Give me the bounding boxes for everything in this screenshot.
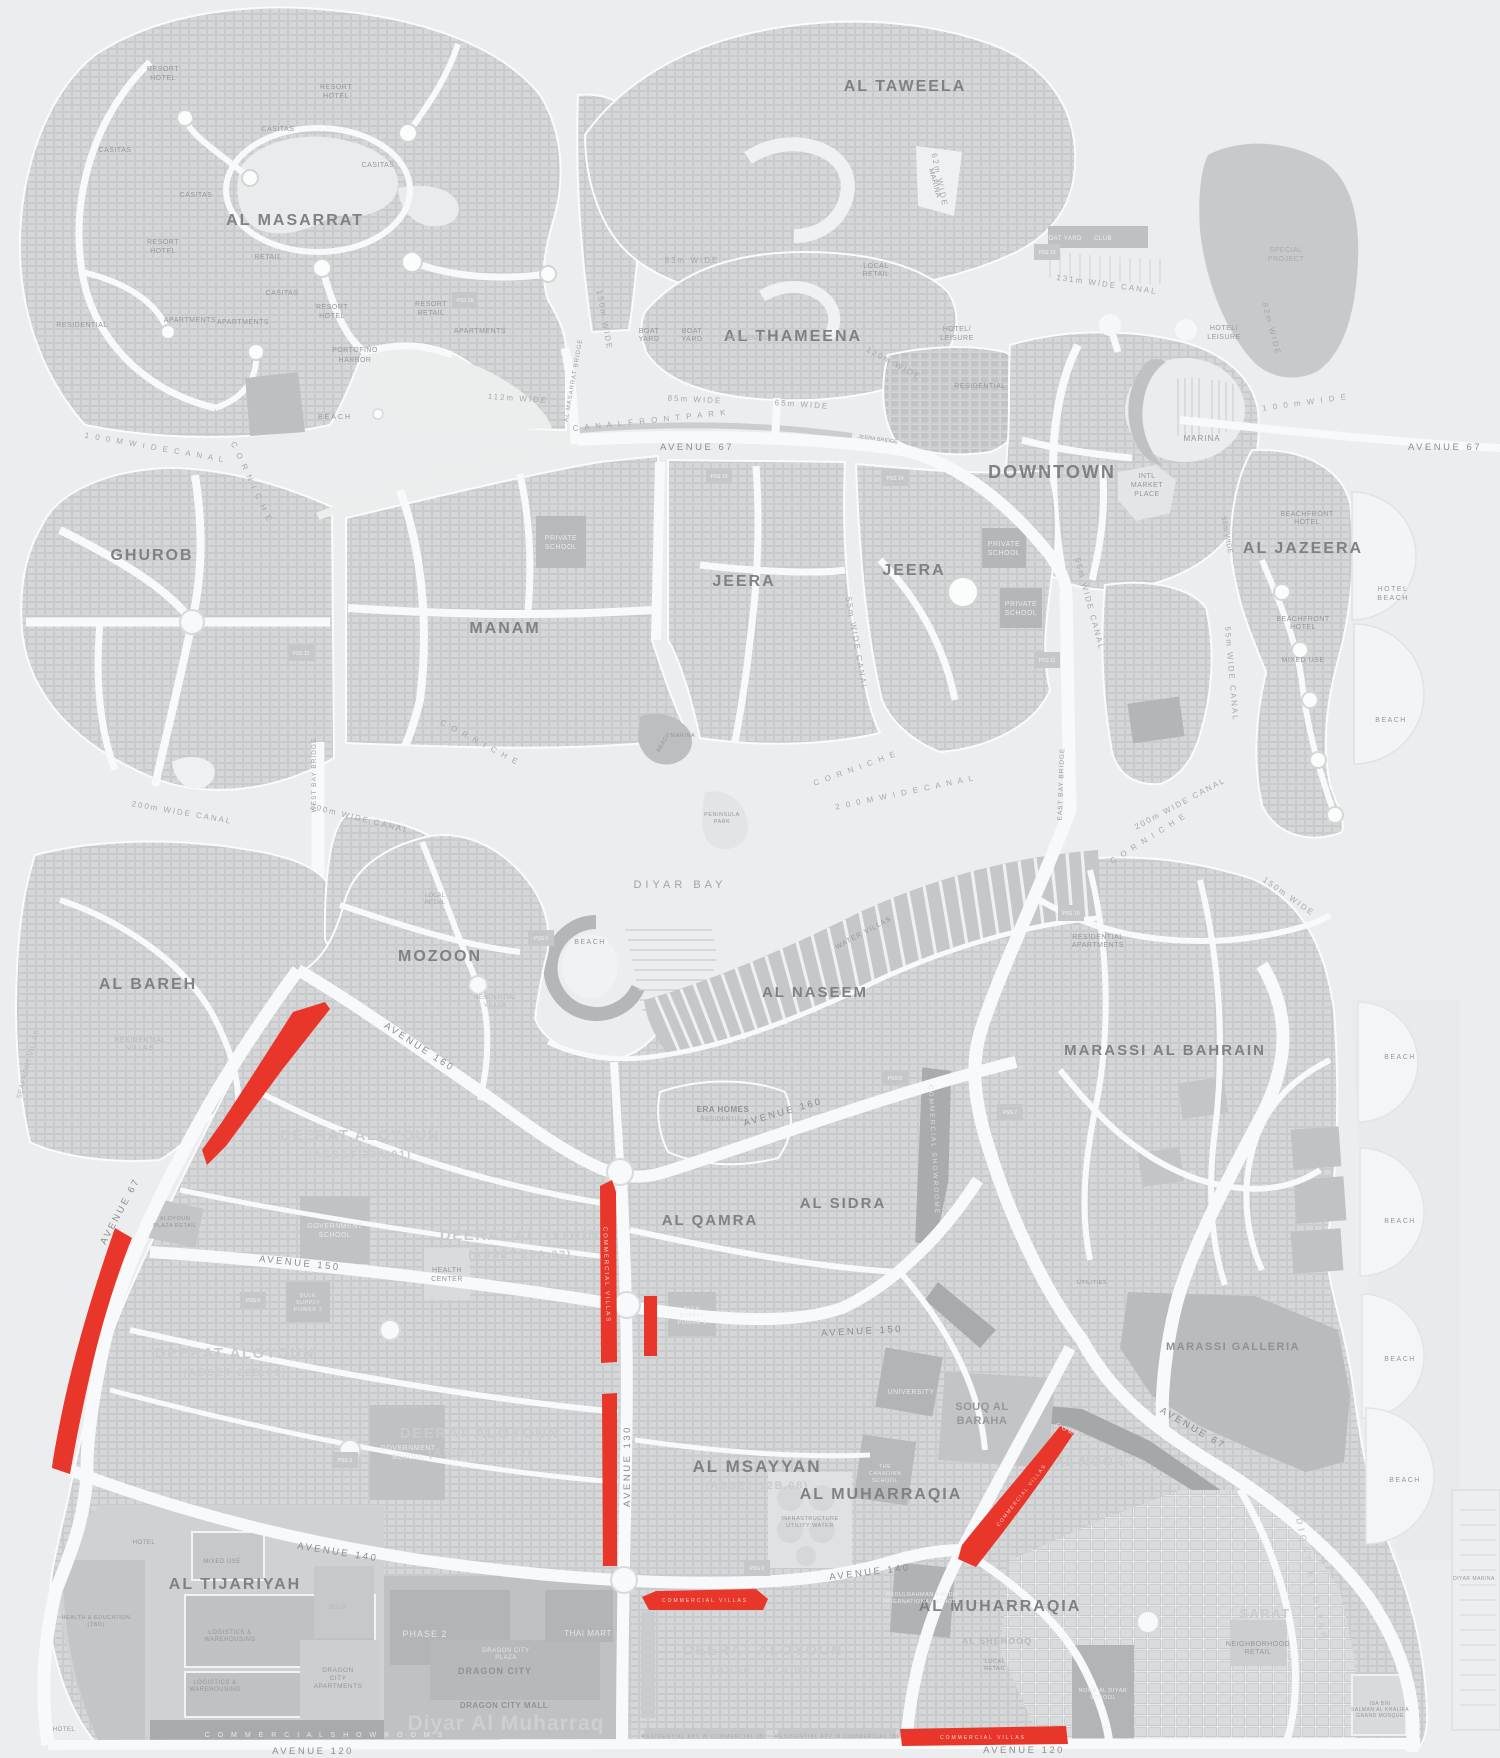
svg-text:(ASSET 22B.01): (ASSET 22B.01): [183, 1367, 287, 1379]
svg-text:NEIGHBORHOOD: NEIGHBORHOOD: [1226, 1641, 1290, 1648]
svg-text:SOUQ AL: SOUQ AL: [955, 1401, 1008, 1413]
svg-text:GOVERNMENT: GOVERNMENT: [380, 1445, 435, 1452]
svg-text:PSS 14: PSS 14: [887, 476, 904, 482]
svg-text:UTILITIES: UTILITIES: [1077, 1280, 1107, 1286]
svg-text:83m WIDE: 83m WIDE: [665, 256, 720, 265]
svg-text:HOTEL/: HOTEL/: [1210, 325, 1238, 332]
svg-text:MANAM: MANAM: [469, 620, 540, 637]
svg-text:CLUB: CLUB: [1094, 236, 1112, 242]
svg-text:APARTMENTS: APARTMENTS: [314, 1683, 363, 1690]
svg-text:APARTMENTS: APARTMENTS: [1072, 942, 1124, 949]
svg-text:PROJECT: PROJECT: [1268, 256, 1304, 263]
svg-text:GHUROB: GHUROB: [110, 547, 193, 564]
svg-text:THE: THE: [879, 1464, 892, 1470]
svg-text:AL SHEROOQ: AL SHEROOQ: [962, 1636, 1032, 1646]
svg-text:AL NASEEM: AL NASEEM: [762, 984, 868, 1001]
svg-text:AVENUE 120: AVENUE 120: [272, 1746, 354, 1757]
svg-text:LOCAL: LOCAL: [425, 893, 445, 899]
svg-text:GRAND MOSQUE: GRAND MOSQUE: [1356, 1713, 1404, 1719]
svg-text:AL TAWEELA: AL TAWEELA: [844, 78, 967, 95]
svg-text:AVENUE 130: AVENUE 130: [622, 1425, 633, 1507]
svg-text:PSS 3: PSS 3: [338, 1458, 352, 1464]
svg-text:(TBD): (TBD): [87, 1622, 104, 1628]
svg-text:POWER 2: POWER 2: [294, 1307, 323, 1313]
svg-text:SCHOOL: SCHOOL: [1005, 610, 1038, 617]
svg-text:PENINSULA: PENINSULA: [704, 812, 740, 818]
svg-text:(ASSET 22B.02): (ASSET 22B.02): [428, 1447, 532, 1459]
svg-text:BEACH: BEACH: [1377, 595, 1409, 602]
svg-text:AL MUHARRAQIA: AL MUHARRAQIA: [800, 1486, 963, 1503]
svg-text:PARK: PARK: [714, 819, 731, 825]
svg-text:NOOR AL DIYAR: NOOR AL DIYAR: [1079, 1688, 1128, 1694]
svg-text:PSS 11: PSS 11: [1039, 658, 1056, 664]
svg-text:RESIDENTIAL: RESIDENTIAL: [954, 383, 1005, 390]
svg-text:CASITAS: CASITAS: [262, 126, 295, 133]
svg-text:POWER 1: POWER 1: [678, 1320, 707, 1326]
svg-text:RESORT: RESORT: [147, 66, 179, 73]
svg-text:PSS 13: PSS 13: [711, 474, 728, 480]
svg-text:Diyar Al Muharraq: Diyar Al Muharraq: [407, 1712, 604, 1735]
svg-text:HOTEL: HOTEL: [1290, 624, 1316, 631]
svg-text:CASITAS: CASITAS: [99, 147, 132, 154]
svg-text:APARTMENTS: APARTMENTS: [164, 317, 216, 324]
svg-text:HOTEL: HOTEL: [1378, 586, 1409, 593]
svg-text:RESIDENTIAL: RESIDENTIAL: [474, 994, 517, 1001]
svg-text:AVENUE 67: AVENUE 67: [1408, 442, 1482, 453]
svg-text:BEACH: BEACH: [1384, 1356, 1416, 1363]
svg-text:RESIDENTIAL: RESIDENTIAL: [727, 335, 770, 342]
svg-text:WAREHOUSING: WAREHOUSING: [189, 1687, 240, 1693]
svg-text:RESIDENTIAL: RESIDENTIAL: [701, 1117, 746, 1123]
svg-text:DOWNTOWN: DOWNTOWN: [988, 462, 1116, 482]
svg-text:RESORT: RESORT: [415, 301, 447, 308]
svg-text:PSS 5: PSS 5: [888, 1076, 902, 1082]
svg-text:UNIVERSITY: UNIVERSITY: [887, 1389, 934, 1396]
svg-text:BOAT: BOAT: [639, 328, 660, 335]
svg-text:AL MASARRAT: AL MASARRAT: [226, 212, 364, 229]
svg-text:SCHOOL: SCHOOL: [392, 1454, 425, 1461]
svg-text:SCHOOL: SCHOOL: [872, 1478, 898, 1484]
svg-text:SCHOOL: SCHOOL: [319, 1232, 352, 1239]
svg-text:RESIDENTIAL: RESIDENTIAL: [1072, 934, 1123, 941]
svg-text:BEACH: BEACH: [1375, 717, 1407, 724]
svg-text:RESIDENTIAL APT W COMMERCIAL (: RESIDENTIAL APT W COMMERCIAL (B): [642, 1734, 767, 1740]
svg-text:HOTEL/: HOTEL/: [943, 326, 971, 333]
svg-text:GOVERNMENT: GOVERNMENT: [307, 1223, 362, 1230]
svg-text:WEST BAY BRIDGE: WEST BAY BRIDGE: [311, 738, 318, 813]
svg-text:MOZOON: MOZOON: [398, 948, 482, 965]
svg-text:BEACHFRONT: BEACHFRONT: [1280, 511, 1333, 518]
svg-text:(ASSET 23A.02): (ASSET 23A.02): [468, 1249, 572, 1261]
svg-text:AVENUE 67: AVENUE 67: [660, 442, 734, 453]
svg-text:RETAIL: RETAIL: [418, 310, 445, 317]
svg-text:RESORT: RESORT: [320, 84, 352, 91]
svg-text:SCHOOL: SCHOOL: [1090, 1695, 1116, 1701]
svg-text:RESIDENTIAL: RESIDENTIAL: [114, 1037, 165, 1044]
svg-text:SUPPLY: SUPPLY: [680, 1313, 704, 1319]
svg-text:HOTEL: HOTEL: [150, 248, 176, 255]
svg-text:RESIDENTIAL APT W COMMERCIAL (: RESIDENTIAL APT W COMMERCIAL (B): [775, 1734, 900, 1740]
svg-text:DEERAT ALOYOUN: DEERAT ALOYOUN: [280, 1127, 440, 1144]
svg-text:JEERA: JEERA: [712, 573, 775, 590]
svg-text:AL QAMRA: AL QAMRA: [662, 1212, 759, 1229]
svg-text:PSS 12: PSS 12: [293, 651, 310, 657]
svg-text:CASITAS: CASITAS: [180, 192, 213, 199]
svg-text:PSS 9: PSS 9: [534, 936, 548, 942]
svg-text:MARINA: MARINA: [1183, 434, 1220, 443]
svg-text:PLAZA RETAIL: PLAZA RETAIL: [153, 1223, 197, 1229]
svg-text:LOGISTICS &: LOGISTICS &: [208, 1630, 251, 1636]
svg-text:DRAGON: DRAGON: [322, 1667, 354, 1674]
svg-text:DEERAT ALOYOUN: DEERAT ALOYOUN: [683, 1642, 843, 1659]
svg-text:HOTEL: HOTEL: [150, 75, 176, 82]
svg-text:CASITAS: CASITAS: [266, 290, 299, 297]
svg-text:APARTMENTS: APARTMENTS: [217, 319, 269, 326]
svg-text:RESIDENTIAL: RESIDENTIAL: [56, 322, 107, 329]
svg-text:PSS 16: PSS 16: [457, 298, 474, 304]
svg-text:HOTEL: HOTEL: [319, 313, 345, 320]
svg-text:SUPPLY: SUPPLY: [296, 1300, 320, 1306]
svg-text:MARINA: MARINA: [671, 733, 695, 739]
svg-text:HOTEL: HOTEL: [133, 1540, 156, 1546]
svg-text:PHASE 2: PHASE 2: [402, 1629, 447, 1639]
svg-text:RETAIL: RETAIL: [863, 271, 890, 278]
svg-text:BEACHFRONT: BEACHFRONT: [1276, 616, 1329, 623]
svg-text:BOAT YARD: BOAT YARD: [1044, 236, 1082, 242]
svg-text:BEACH: BEACH: [1384, 1054, 1416, 1061]
svg-text:DRAGON CITY: DRAGON CITY: [458, 1666, 532, 1676]
svg-text:YARD: YARD: [682, 336, 703, 343]
svg-text:THAI MART: THAI MART: [564, 1629, 611, 1638]
svg-text:AL JAZEERA: AL JAZEERA: [1243, 540, 1363, 557]
svg-text:BEACH: BEACH: [574, 939, 606, 946]
svg-text:RESORT: RESORT: [147, 239, 179, 246]
svg-text:INTL: INTL: [1138, 473, 1155, 480]
svg-text:DEERAT ALOYOUN: DEERAT ALOYOUN: [400, 1425, 560, 1442]
svg-text:DEERAT ALOYOUN: DEERAT ALOYOUN: [155, 1345, 315, 1362]
svg-text:MIXED USE: MIXED USE: [1281, 657, 1324, 664]
svg-text:SCHOOL: SCHOOL: [545, 544, 578, 551]
svg-text:AL MSAYYAN: AL MSAYYAN: [693, 1457, 822, 1476]
svg-text:PLAZA: PLAZA: [495, 1655, 517, 1661]
svg-text:DIYAR MARINA: DIYAR MARINA: [1453, 1576, 1495, 1582]
svg-text:MARASSI AL BAHRAIN: MARASSI AL BAHRAIN: [1064, 1042, 1266, 1059]
svg-text:BULK: BULK: [684, 1306, 700, 1312]
svg-text:COMMERCIAL VILLAS: COMMERCIAL VILLAS: [662, 1598, 748, 1604]
svg-text:DRAGON CITY MALL: DRAGON CITY MALL: [460, 1701, 548, 1710]
svg-text:JEERA: JEERA: [882, 562, 945, 579]
svg-text:CENTER: CENTER: [431, 1276, 463, 1283]
svg-text:YARD: YARD: [639, 336, 660, 343]
svg-text:COMMERCIAL VILLAS: COMMERCIAL VILLAS: [940, 1735, 1026, 1741]
svg-text:BEACH: BEACH: [1384, 1218, 1416, 1225]
svg-text:SARAT: SARAT: [1239, 1606, 1290, 1621]
svg-text:DEERAT ALOYOUN: DEERAT ALOYOUN: [440, 1227, 600, 1244]
svg-text:BEACH: BEACH: [318, 414, 352, 421]
svg-text:MARKET: MARKET: [1131, 482, 1163, 489]
svg-text:AL BAREH: AL BAREH: [99, 976, 197, 993]
svg-text:(ASSET 12A.01): (ASSET 12A.01): [711, 1664, 815, 1676]
svg-text:HOTEL: HOTEL: [53, 1727, 76, 1733]
svg-text:BULK: BULK: [300, 1293, 316, 1299]
svg-text:PRIVATE: PRIVATE: [988, 541, 1020, 548]
svg-text:AVENUE 120: AVENUE 120: [983, 1745, 1065, 1756]
svg-text:BARAHA: BARAHA: [957, 1415, 1008, 1427]
svg-text:SCHOOL: SCHOOL: [988, 550, 1021, 557]
svg-text:LEISURE: LEISURE: [1207, 334, 1240, 341]
svg-text:HOTEL: HOTEL: [1294, 519, 1320, 526]
svg-text:CANADIAN: CANADIAN: [869, 1471, 901, 1477]
svg-text:LEISURE: LEISURE: [940, 335, 973, 342]
svg-text:SOUK: SOUK: [328, 1605, 347, 1611]
svg-text:MARASSI GALLERIA: MARASSI GALLERIA: [1166, 1341, 1300, 1353]
svg-text:SPECIAL: SPECIAL: [1269, 247, 1302, 254]
svg-text:PSS 2: PSS 2: [750, 1566, 764, 1572]
svg-text:ABDULRAHMAN KANDO: ABDULRAHMAN KANDO: [886, 1592, 958, 1598]
svg-text:AL SIDRA: AL SIDRA: [800, 1195, 887, 1212]
svg-text:DIYAR BAY: DIYAR BAY: [633, 879, 726, 891]
svg-text:VILLAS: VILLAS: [484, 1002, 507, 1009]
svg-text:PSS 7: PSS 7: [1003, 1110, 1017, 1116]
svg-text:RESORT: RESORT: [316, 304, 348, 311]
svg-text:RETAIL: RETAIL: [984, 1666, 1006, 1672]
svg-text:MIXED USE: MIXED USE: [203, 1559, 241, 1565]
svg-text:DRAGON CITY: DRAGON CITY: [482, 1648, 529, 1654]
svg-text:PRIVATE: PRIVATE: [1005, 601, 1037, 608]
svg-text:INTERNATIONAL SCHOOL: INTERNATIONAL SCHOOL: [883, 1599, 961, 1605]
svg-text:INFRASTRUCTURE: INFRASTRUCTURE: [781, 1516, 838, 1522]
svg-text:ERA HOMES: ERA HOMES: [697, 1105, 750, 1114]
svg-text:PLACE: PLACE: [1134, 491, 1159, 498]
svg-text:PRIVATE: PRIVATE: [545, 535, 577, 542]
svg-text:HARBOR: HARBOR: [339, 357, 372, 364]
svg-text:LOCAL: LOCAL: [863, 263, 888, 270]
svg-text:ALOYOUN: ALOYOUN: [160, 1216, 190, 1222]
svg-text:PSS 10: PSS 10: [1063, 911, 1080, 917]
svg-text:WAREHOUSING: WAREHOUSING: [204, 1637, 255, 1643]
svg-text:RETAIL: RETAIL: [425, 900, 446, 906]
svg-text:RETAIL: RETAIL: [1245, 1649, 1272, 1656]
svg-text:LOCAL: LOCAL: [985, 1659, 1006, 1665]
svg-text:(ASSET 12B.08): (ASSET 12B.08): [705, 1480, 809, 1492]
svg-text:AL TIJARIYAH: AL TIJARIYAH: [169, 1576, 301, 1593]
svg-text:PORTOFINO: PORTOFINO: [332, 347, 378, 354]
svg-text:BEACH: BEACH: [1389, 1477, 1421, 1484]
svg-text:BOAT: BOAT: [682, 328, 703, 335]
svg-text:RETAIL: RETAIL: [255, 254, 282, 261]
svg-text:VILLAS: VILLAS: [127, 1045, 154, 1052]
svg-text:HEALTH & EDUCATION: HEALTH & EDUCATION: [62, 1615, 131, 1621]
svg-text:(ASSET 23A.01): (ASSET 23A.01): [308, 1149, 412, 1161]
svg-text:APARTMENTS: APARTMENTS: [454, 328, 506, 335]
svg-text:CASITAS: CASITAS: [362, 162, 395, 169]
svg-text:UTILITY WATER: UTILITY WATER: [786, 1523, 834, 1529]
svg-text:LOGISTICS &: LOGISTICS &: [193, 1680, 236, 1686]
svg-text:HOTEL: HOTEL: [323, 93, 349, 100]
svg-text:CITY: CITY: [330, 1675, 347, 1682]
svg-text:PSS 8: PSS 8: [246, 1298, 260, 1304]
svg-text:HEALTH: HEALTH: [432, 1267, 462, 1274]
svg-text:PSS 15: PSS 15: [1039, 250, 1056, 256]
